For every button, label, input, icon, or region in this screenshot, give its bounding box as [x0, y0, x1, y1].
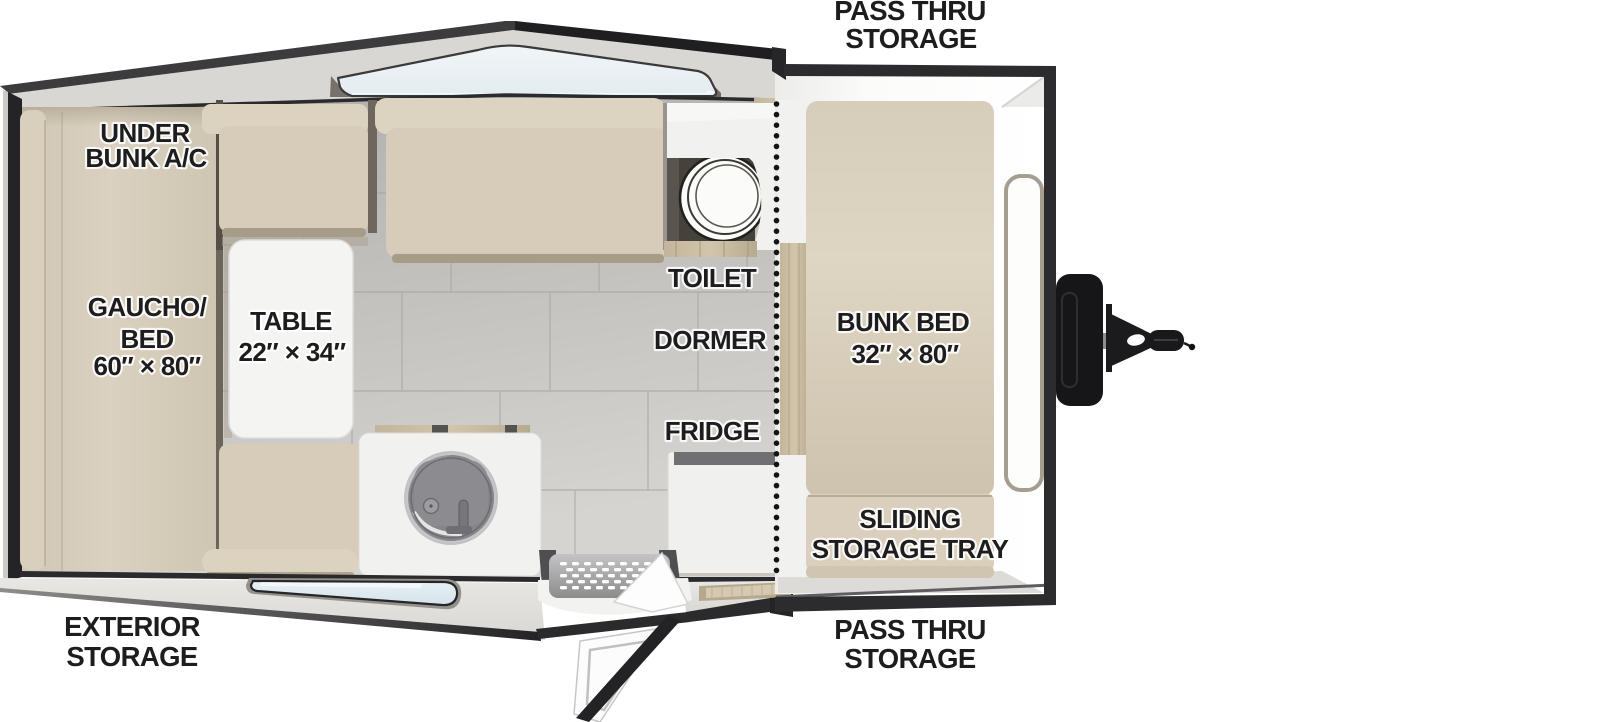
svg-text:STORAGE: STORAGE [66, 641, 198, 672]
svg-text:SLIDING: SLIDING [859, 504, 960, 534]
svg-text:BED: BED [120, 324, 173, 354]
svg-text:STORAGE: STORAGE [844, 643, 976, 674]
svg-text:STORAGE: STORAGE [845, 23, 977, 54]
svg-text:60″ × 80″: 60″ × 80″ [94, 351, 201, 381]
svg-text:TABLE: TABLE [250, 306, 332, 336]
svg-text:TOILET: TOILET [668, 263, 757, 293]
svg-text:BUNK A/C: BUNK A/C [85, 143, 207, 173]
svg-text:DORMER: DORMER [654, 325, 767, 355]
svg-text:PASS THRU: PASS THRU [834, 614, 985, 645]
svg-text:FRIDGE: FRIDGE [665, 416, 760, 446]
svg-text:32″ × 80″: 32″ × 80″ [852, 339, 959, 369]
svg-text:BUNK BED: BUNK BED [837, 307, 969, 337]
svg-text:EXTERIOR: EXTERIOR [64, 611, 201, 642]
svg-text:22″ × 34″: 22″ × 34″ [239, 337, 346, 367]
svg-text:GAUCHO/: GAUCHO/ [88, 292, 207, 322]
svg-text:STORAGE TRAY: STORAGE TRAY [812, 534, 1009, 564]
